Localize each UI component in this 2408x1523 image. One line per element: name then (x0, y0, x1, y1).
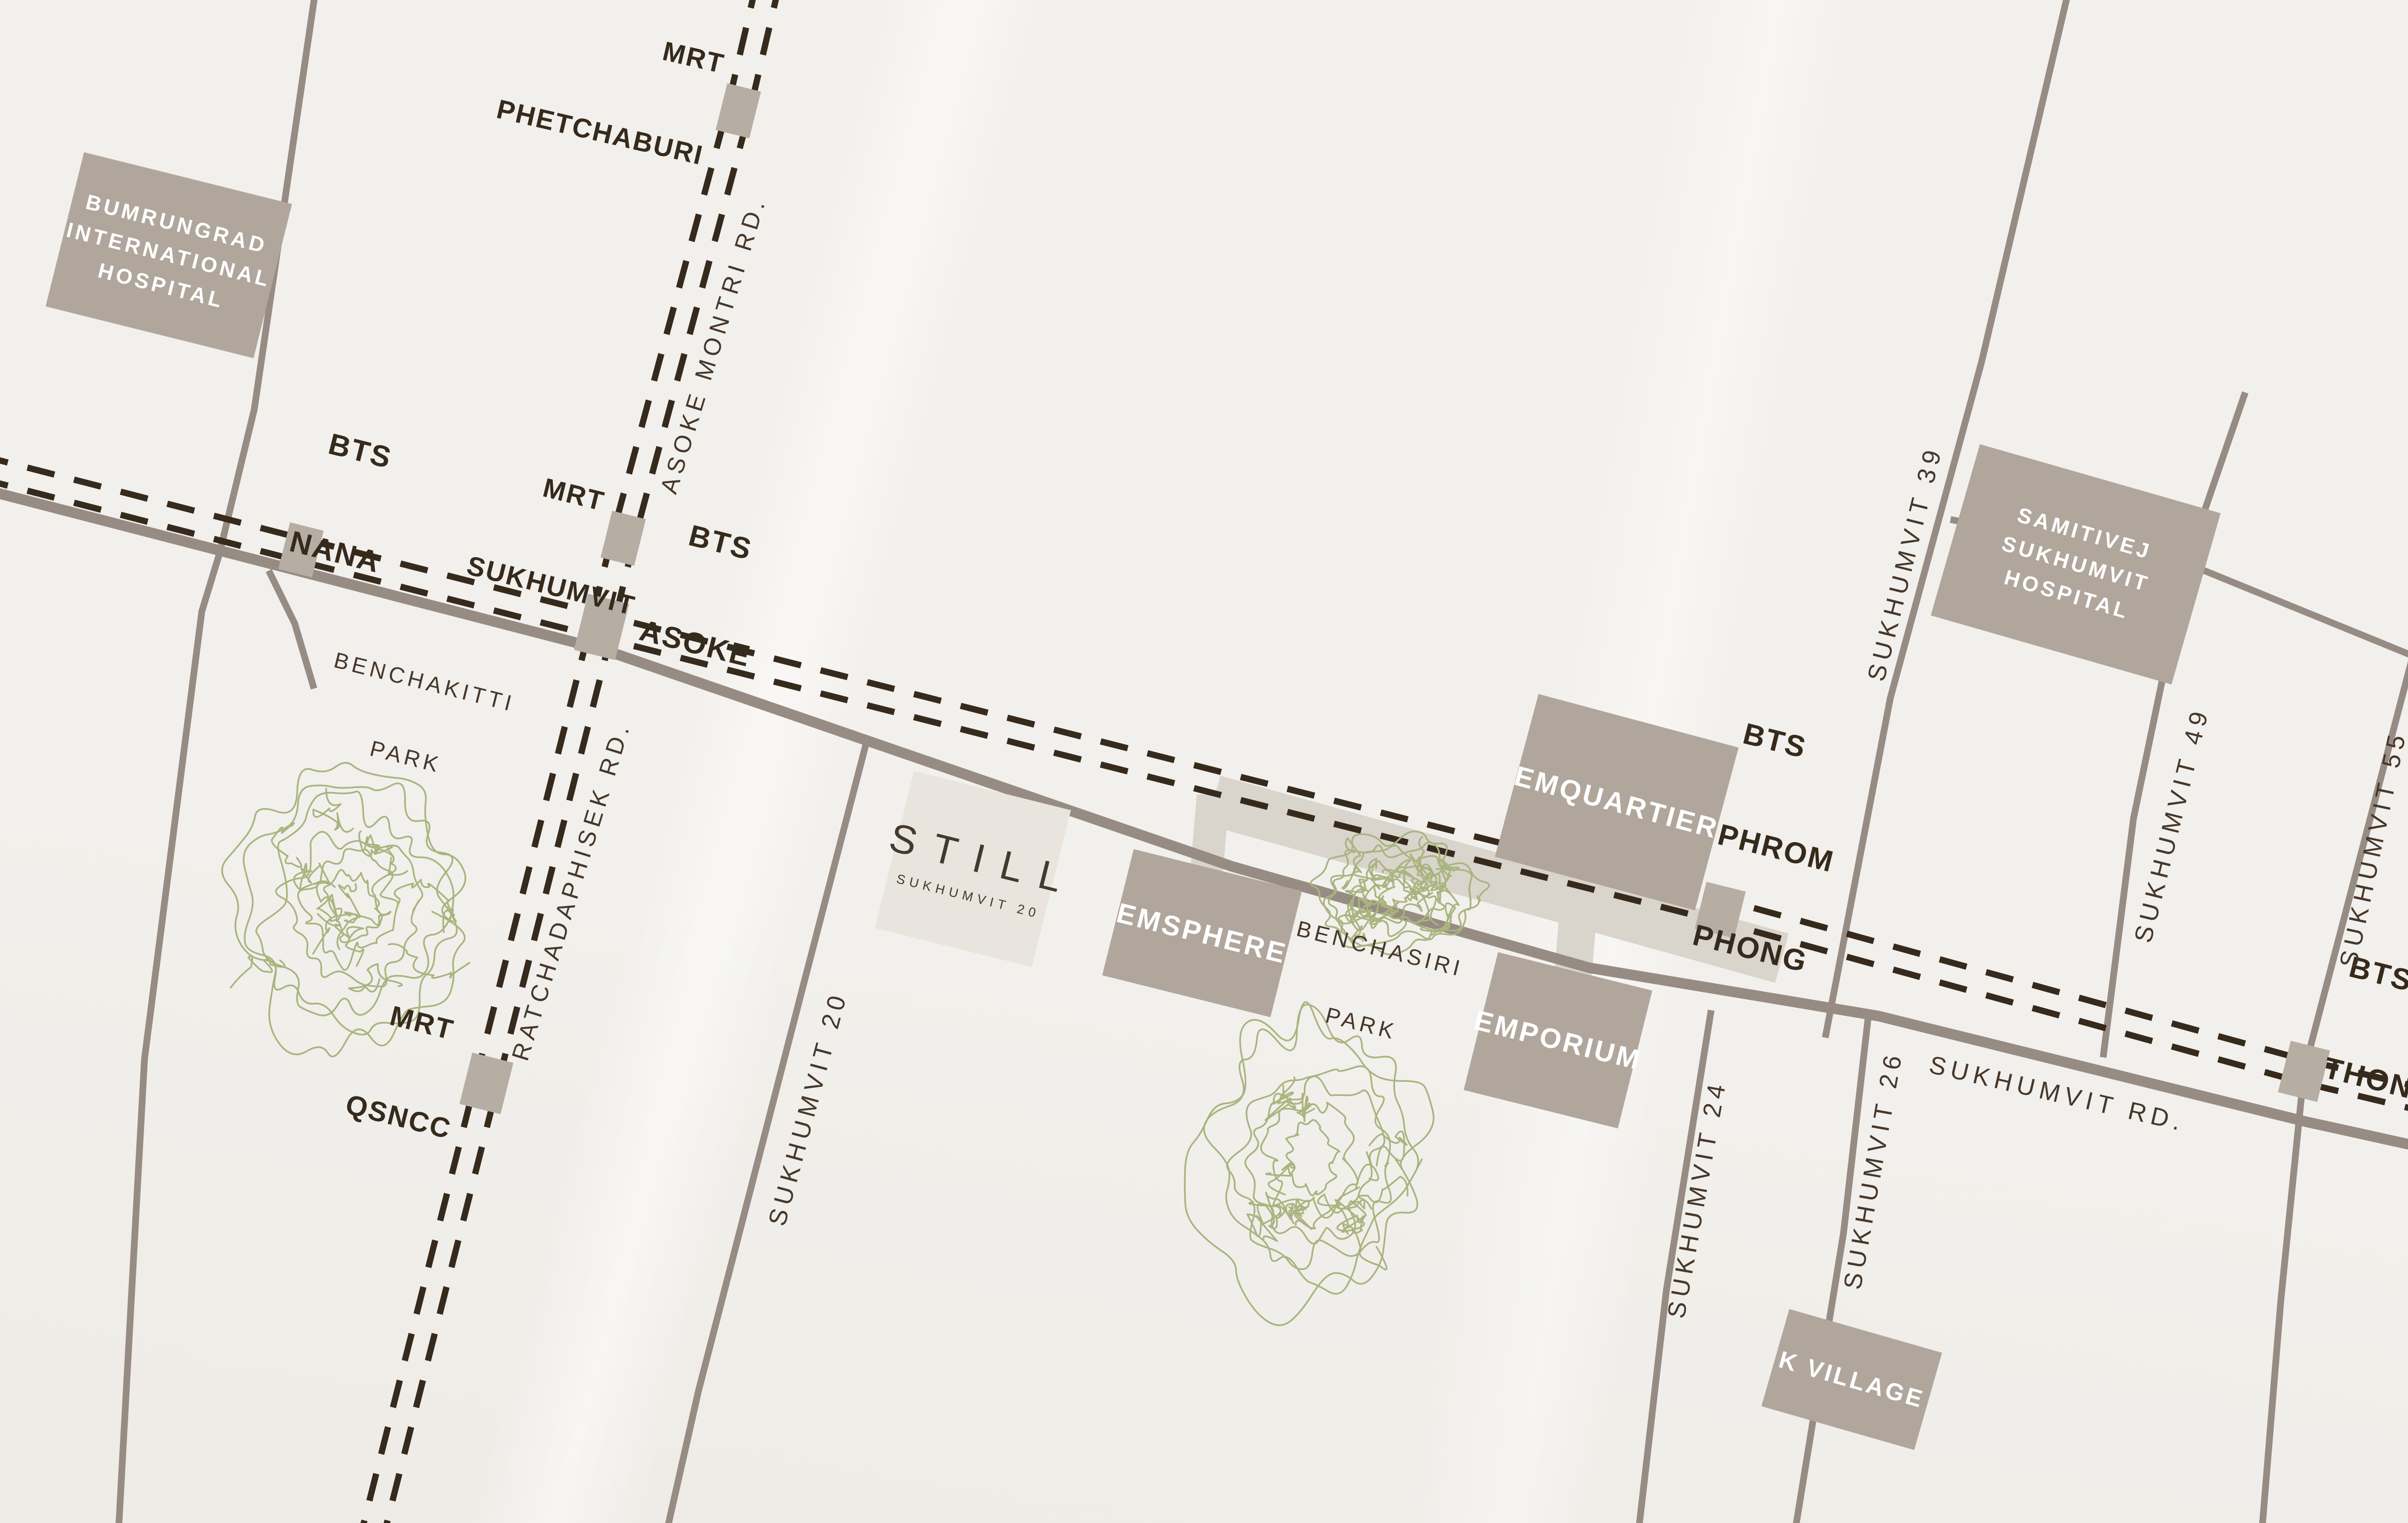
sukhumvit-area-map: BUMRUNGRAD INTERNATIONAL HOSPITAL SAMITI… (0, 0, 2408, 1523)
building-label: K VILLAGE (1775, 1341, 1929, 1418)
building-label: EMSPHERE (1112, 892, 1292, 975)
building-label: EMPORIUM (1470, 999, 1647, 1081)
building-label: EMQUARTIER (1510, 755, 1724, 850)
